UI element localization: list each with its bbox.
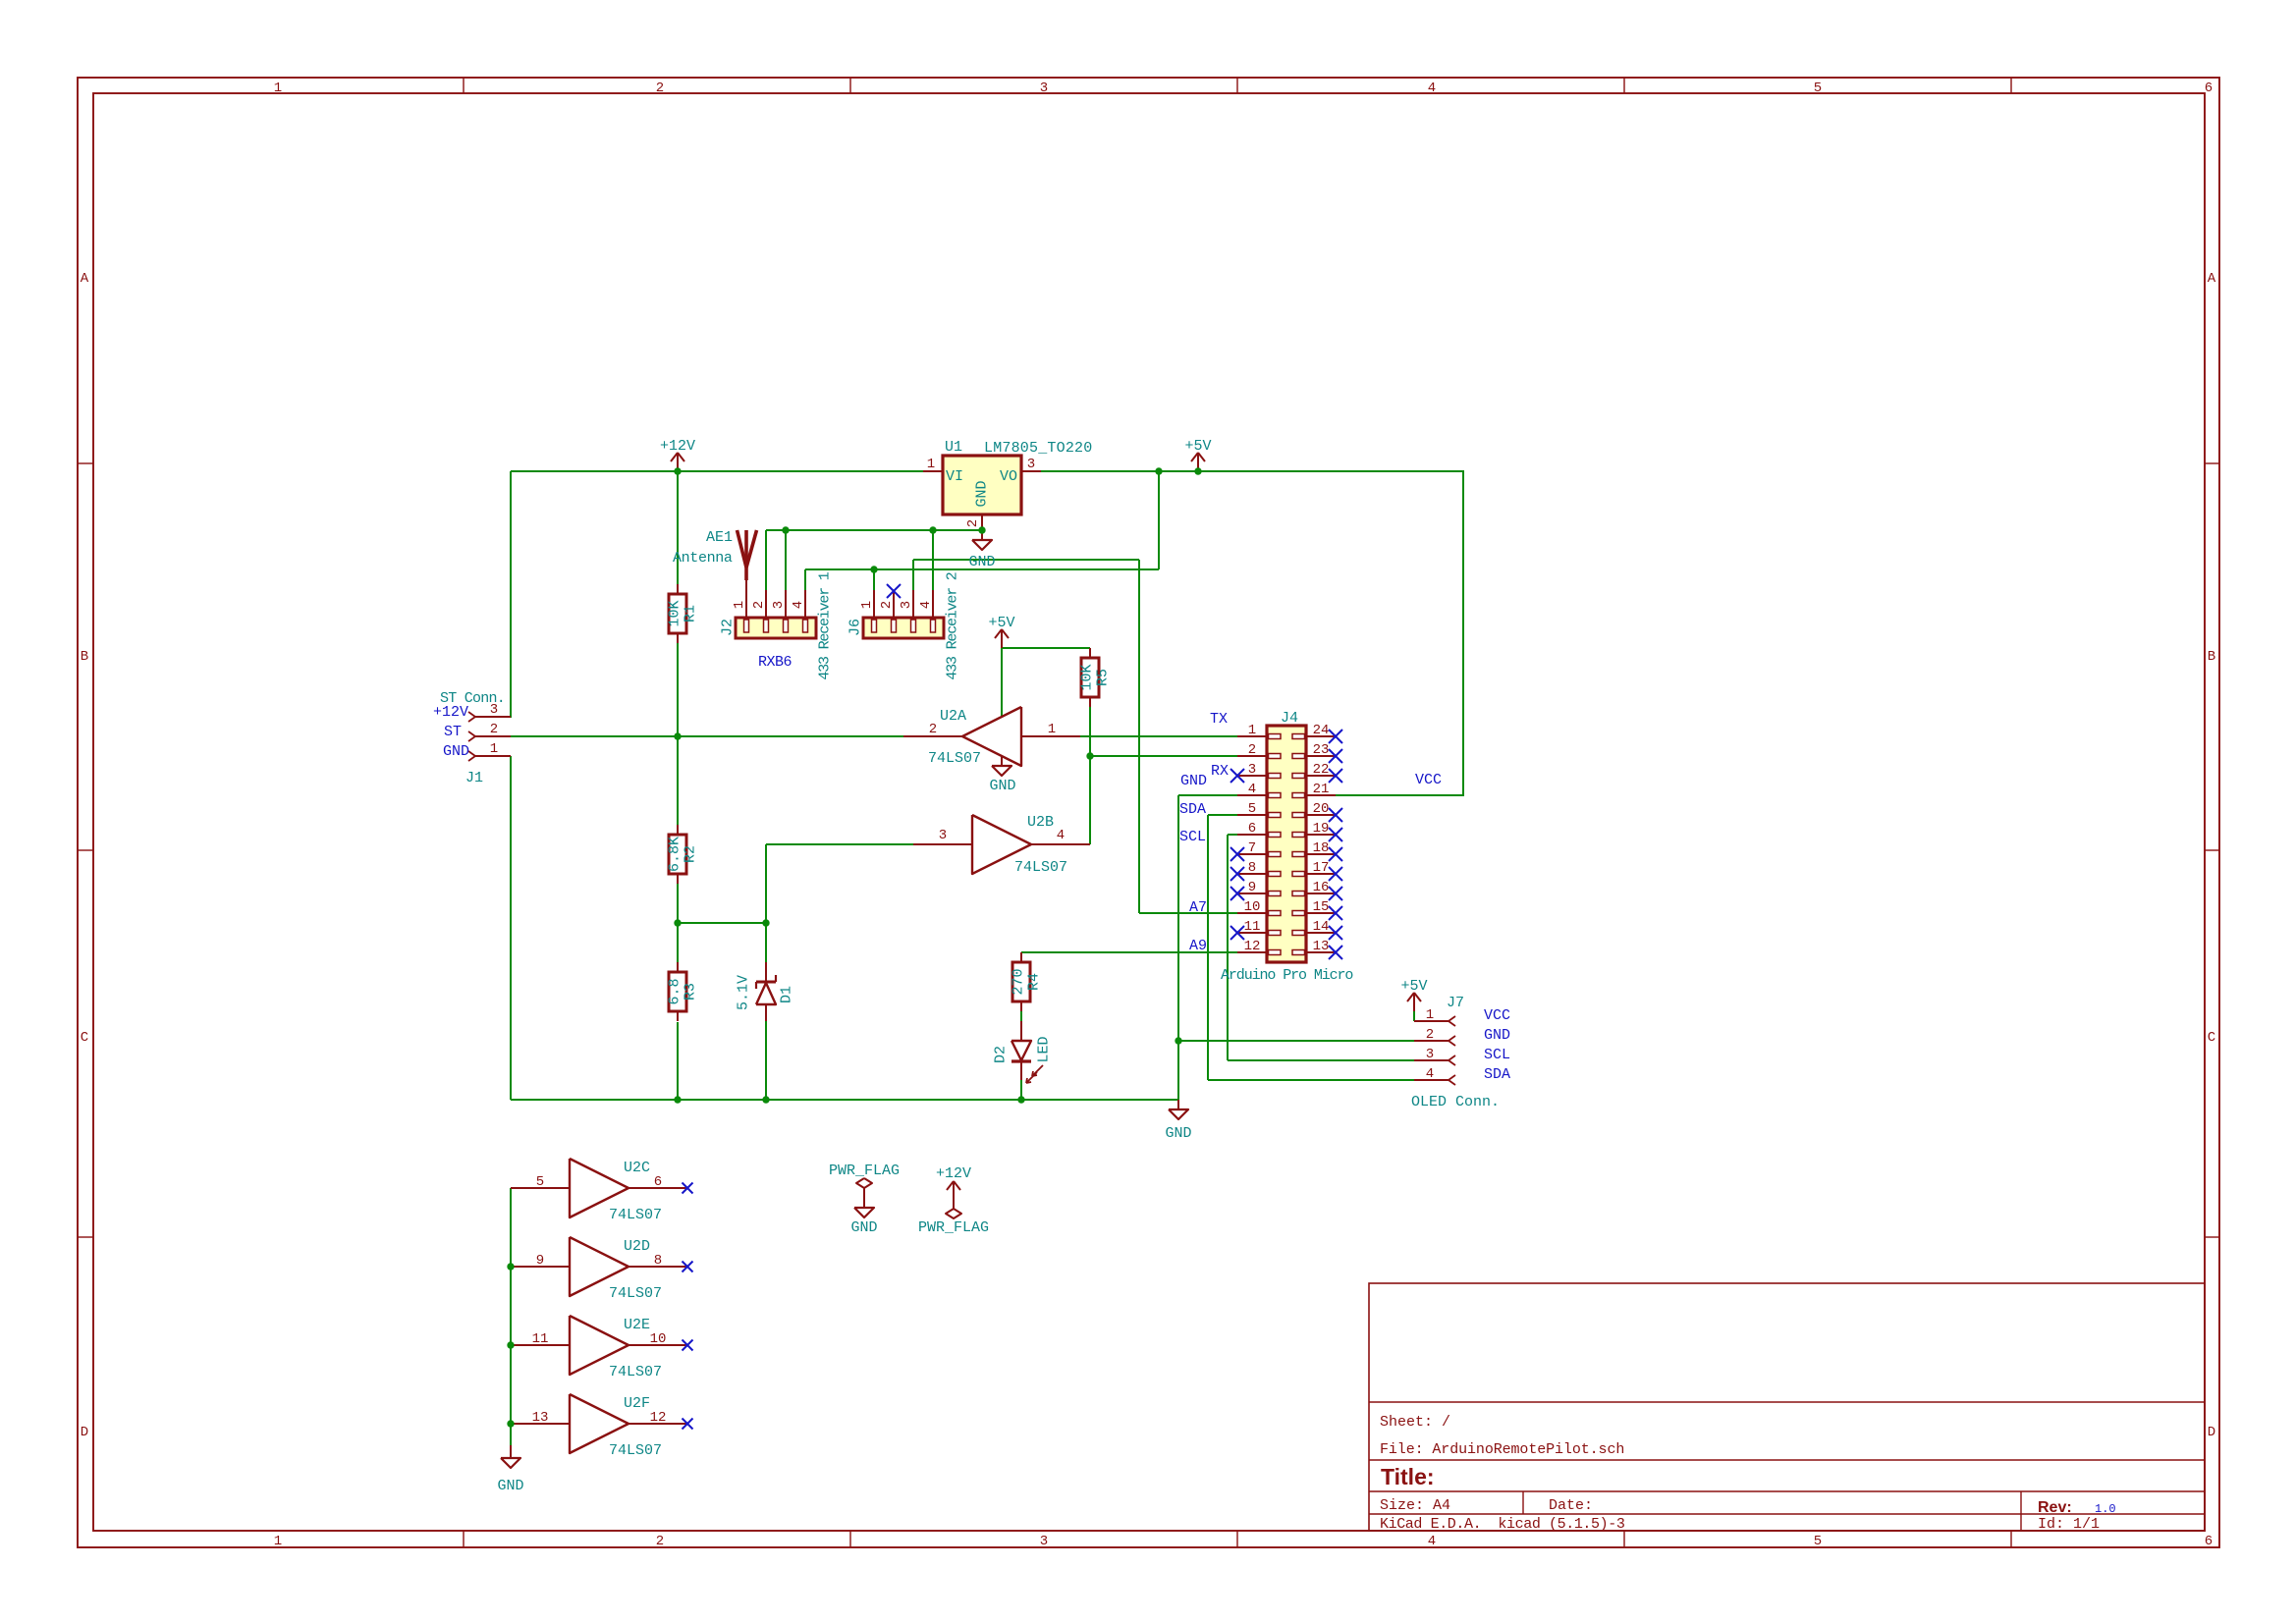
svg-text:B: B <box>2208 649 2215 665</box>
svg-text:16: 16 <box>1313 880 1330 895</box>
svg-text:24: 24 <box>1313 723 1330 738</box>
svg-text:9: 9 <box>536 1253 544 1269</box>
svg-text:10K: 10K <box>667 600 683 626</box>
svg-text:3: 3 <box>1040 81 1048 96</box>
svg-text:R5: R5 <box>1095 669 1112 686</box>
svg-text:Arduino Pro Micro: Arduino Pro Micro <box>1221 967 1353 984</box>
svg-text:5.1V: 5.1V <box>736 975 752 1010</box>
svg-text:11: 11 <box>1244 919 1261 935</box>
svg-text:GND: GND <box>1165 1125 1191 1142</box>
svg-text:2: 2 <box>879 601 895 609</box>
svg-text:13: 13 <box>532 1410 549 1426</box>
svg-text:SDA: SDA <box>1484 1066 1510 1083</box>
svg-text:10: 10 <box>650 1331 667 1347</box>
svg-text:D1: D1 <box>779 986 795 1003</box>
svg-text:3: 3 <box>1040 1534 1048 1549</box>
svg-text:2: 2 <box>1248 742 1256 758</box>
svg-text:+5V: +5V <box>1184 438 1211 455</box>
svg-text:12: 12 <box>1244 939 1261 954</box>
svg-text:GND: GND <box>443 743 469 760</box>
svg-text:SCL: SCL <box>1484 1047 1510 1063</box>
svg-text:U1: U1 <box>945 439 962 456</box>
svg-text:RX: RX <box>1211 763 1229 780</box>
svg-text:A: A <box>81 271 89 287</box>
svg-text:6.8: 6.8 <box>667 978 683 1004</box>
svg-text:1: 1 <box>274 1534 282 1549</box>
svg-text:KiCad E.D.A. kicad (5.1.5)-3: KiCad E.D.A. kicad (5.1.5)-3 <box>1380 1516 1625 1533</box>
svg-text:Rev:: Rev: <box>2038 1499 2072 1516</box>
svg-text:4: 4 <box>791 601 806 609</box>
svg-text:+12V: +12V <box>936 1165 971 1182</box>
svg-text:D2: D2 <box>993 1046 1010 1063</box>
svg-text:3: 3 <box>771 601 787 609</box>
svg-text:J2: J2 <box>720 619 737 636</box>
svg-text:U2B: U2B <box>1027 814 1054 831</box>
svg-text:+12V: +12V <box>660 438 695 455</box>
svg-text:U2D: U2D <box>624 1238 650 1255</box>
svg-text:1: 1 <box>927 457 935 472</box>
svg-text:3: 3 <box>1248 762 1256 778</box>
svg-text:433 Receiver 1: 433 Receiver 1 <box>817 571 834 679</box>
svg-text:1: 1 <box>859 601 875 609</box>
svg-text:Title:: Title: <box>1381 1464 1435 1489</box>
svg-text:20: 20 <box>1313 801 1330 817</box>
svg-text:B: B <box>81 649 88 665</box>
svg-text:2: 2 <box>490 722 498 737</box>
svg-text:RXB6: RXB6 <box>758 654 793 671</box>
svg-text:1.0: 1.0 <box>2095 1502 2116 1516</box>
svg-text:+5V: +5V <box>1400 978 1427 995</box>
svg-text:2: 2 <box>656 1534 664 1549</box>
svg-text:1: 1 <box>490 741 498 757</box>
svg-text:File: ArduinoRemotePilot.sch: File: ArduinoRemotePilot.sch <box>1380 1441 1624 1458</box>
svg-text:3: 3 <box>939 828 947 843</box>
svg-text:U2F: U2F <box>624 1395 650 1412</box>
svg-text:J4: J4 <box>1281 710 1298 727</box>
svg-text:10: 10 <box>1244 899 1261 915</box>
svg-text:74LS07: 74LS07 <box>609 1442 662 1459</box>
svg-text:A: A <box>2208 271 2216 287</box>
svg-text:3: 3 <box>1027 457 1035 472</box>
svg-text:433 Receiver 2: 433 Receiver 2 <box>945 572 961 679</box>
svg-text:Size: A4: Size: A4 <box>1380 1497 1450 1514</box>
svg-text:TX: TX <box>1210 711 1228 728</box>
svg-text:12: 12 <box>650 1410 667 1426</box>
svg-text:ST: ST <box>444 724 462 740</box>
svg-text:6: 6 <box>2205 81 2213 96</box>
svg-text:6: 6 <box>1248 821 1256 837</box>
svg-text:270: 270 <box>1011 968 1027 995</box>
svg-text:R2: R2 <box>683 845 699 863</box>
svg-text:1: 1 <box>1248 723 1256 738</box>
svg-text:14: 14 <box>1313 919 1330 935</box>
svg-text:R3: R3 <box>683 983 699 1001</box>
svg-text:PWR_FLAG: PWR_FLAG <box>918 1219 989 1236</box>
svg-text:5: 5 <box>1248 801 1256 817</box>
svg-text:2: 2 <box>751 601 767 609</box>
svg-text:VO: VO <box>1000 468 1017 485</box>
svg-text:15: 15 <box>1313 899 1330 915</box>
svg-text:5: 5 <box>536 1174 544 1190</box>
svg-text:C: C <box>2208 1030 2215 1046</box>
svg-text:J1: J1 <box>465 770 483 786</box>
svg-text:13: 13 <box>1313 939 1330 954</box>
svg-text:10K: 10K <box>1079 664 1096 690</box>
svg-text:LM7805_TO220: LM7805_TO220 <box>984 440 1092 457</box>
svg-text:PWR_FLAG: PWR_FLAG <box>829 1163 900 1179</box>
svg-text:5: 5 <box>1814 1534 1822 1549</box>
svg-text:+5V: +5V <box>988 615 1014 631</box>
svg-text:5: 5 <box>1814 81 1822 96</box>
svg-text:SDA: SDA <box>1179 801 1206 818</box>
svg-text:6: 6 <box>654 1174 662 1190</box>
svg-text:1: 1 <box>1048 722 1056 737</box>
svg-text:6.8K: 6.8K <box>667 837 683 872</box>
svg-text:GND: GND <box>1180 773 1207 789</box>
svg-text:GND: GND <box>497 1478 523 1494</box>
svg-text:74LS07: 74LS07 <box>609 1285 662 1302</box>
svg-text:18: 18 <box>1313 840 1330 856</box>
svg-text:21: 21 <box>1313 782 1330 797</box>
svg-text:U2C: U2C <box>624 1160 650 1176</box>
svg-text:GND: GND <box>968 554 995 570</box>
svg-text:VCC: VCC <box>1484 1007 1510 1024</box>
svg-text:1: 1 <box>732 601 747 609</box>
svg-text:17: 17 <box>1313 860 1330 876</box>
svg-text:74LS07: 74LS07 <box>1014 859 1067 876</box>
svg-text:Antenna: Antenna <box>673 550 733 567</box>
svg-text:Id: 1/1: Id: 1/1 <box>2038 1516 2100 1533</box>
svg-text:Sheet: /: Sheet: / <box>1380 1414 1450 1431</box>
svg-text:8: 8 <box>654 1253 662 1269</box>
svg-text:VCC: VCC <box>1415 772 1442 788</box>
svg-text:7: 7 <box>1248 840 1256 856</box>
svg-text:AE1: AE1 <box>706 529 733 546</box>
svg-text:3: 3 <box>1426 1047 1434 1062</box>
svg-text:Date:: Date: <box>1549 1497 1593 1514</box>
svg-text:6: 6 <box>2205 1534 2213 1549</box>
svg-text:4: 4 <box>1248 782 1256 797</box>
svg-text:D: D <box>2208 1425 2215 1440</box>
svg-text:4: 4 <box>918 601 934 609</box>
svg-text:A7: A7 <box>1189 899 1207 916</box>
svg-text:9: 9 <box>1248 880 1256 895</box>
svg-text:D: D <box>81 1425 88 1440</box>
svg-text:+12V: +12V <box>433 704 468 721</box>
svg-text:3: 3 <box>899 601 914 609</box>
svg-text:U2A: U2A <box>940 708 966 725</box>
svg-text:23: 23 <box>1313 742 1330 758</box>
svg-text:19: 19 <box>1313 821 1330 837</box>
svg-text:2: 2 <box>929 722 937 737</box>
svg-text:1: 1 <box>1426 1007 1434 1023</box>
svg-text:A9: A9 <box>1189 938 1207 954</box>
svg-text:4: 4 <box>1426 1066 1434 1082</box>
svg-text:GND: GND <box>974 480 991 507</box>
svg-text:8: 8 <box>1248 860 1256 876</box>
svg-text:2: 2 <box>656 81 664 96</box>
svg-text:GND: GND <box>989 778 1015 794</box>
svg-text:C: C <box>81 1030 88 1046</box>
svg-text:74LS07: 74LS07 <box>928 750 981 767</box>
svg-text:SCL: SCL <box>1179 829 1206 845</box>
svg-text:J7: J7 <box>1447 995 1464 1011</box>
svg-text:GND: GND <box>1484 1027 1510 1044</box>
svg-text:4: 4 <box>1428 81 1436 96</box>
svg-text:1: 1 <box>274 81 282 96</box>
svg-text:U2E: U2E <box>624 1317 650 1333</box>
svg-text:J6: J6 <box>847 619 864 636</box>
svg-text:22: 22 <box>1313 762 1330 778</box>
svg-text:R4: R4 <box>1026 973 1043 991</box>
svg-text:R1: R1 <box>683 605 699 622</box>
svg-text:2: 2 <box>965 519 981 527</box>
svg-text:GND: GND <box>850 1219 877 1236</box>
svg-text:74LS07: 74LS07 <box>609 1207 662 1223</box>
svg-text:4: 4 <box>1428 1534 1436 1549</box>
svg-text:LED: LED <box>1036 1036 1053 1062</box>
svg-text:OLED Conn.: OLED Conn. <box>1411 1094 1500 1110</box>
svg-text:74LS07: 74LS07 <box>609 1364 662 1380</box>
svg-text:11: 11 <box>532 1331 549 1347</box>
svg-text:VI: VI <box>946 468 963 485</box>
svg-text:2: 2 <box>1426 1027 1434 1043</box>
svg-text:4: 4 <box>1057 828 1065 843</box>
